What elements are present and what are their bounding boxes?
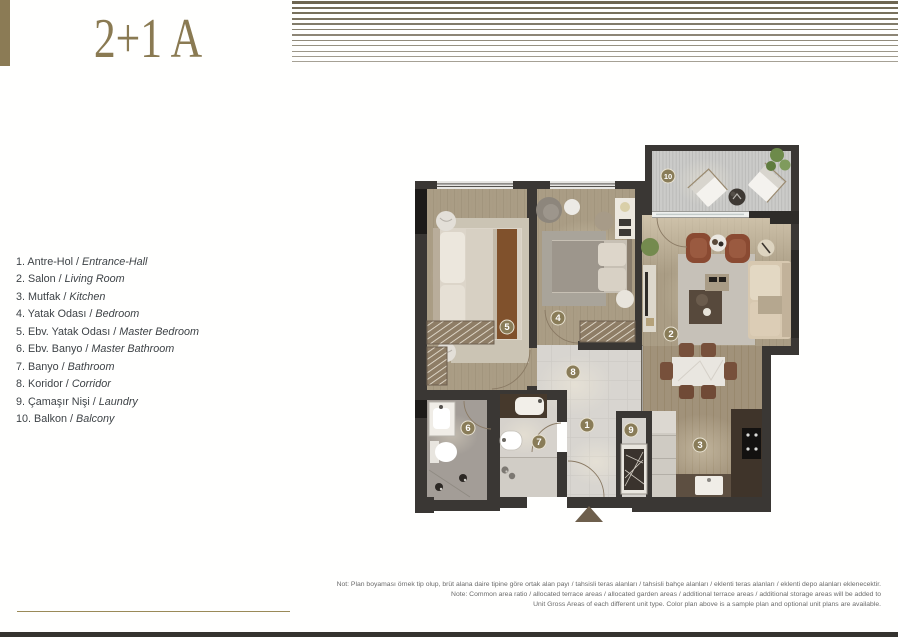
svg-text:6: 6: [465, 423, 470, 434]
svg-text:4: 4: [555, 313, 561, 324]
svg-text:1: 1: [584, 420, 590, 431]
svg-text:5: 5: [504, 322, 510, 333]
svg-text:9: 9: [628, 425, 633, 436]
svg-text:3: 3: [697, 440, 702, 451]
svg-text:2: 2: [668, 329, 673, 340]
svg-text:10: 10: [664, 172, 672, 181]
svg-text:8: 8: [570, 367, 575, 378]
svg-text:7: 7: [536, 437, 541, 448]
